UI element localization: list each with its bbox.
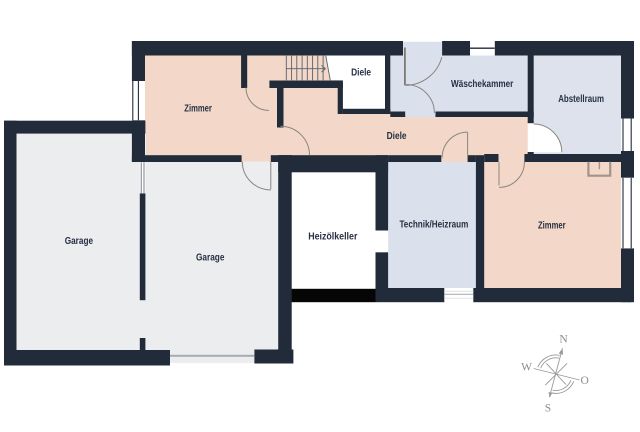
- svg-text:S: S: [545, 402, 551, 414]
- svg-text:Zimmer: Zimmer: [184, 103, 212, 114]
- svg-text:Diele: Diele: [351, 67, 371, 78]
- svg-text:Diele: Diele: [387, 131, 407, 142]
- svg-text:Zimmer: Zimmer: [538, 220, 566, 231]
- svg-text:Garage: Garage: [65, 236, 94, 247]
- svg-text:W: W: [521, 362, 532, 374]
- svg-text:O: O: [580, 375, 588, 387]
- svg-text:N: N: [559, 334, 568, 346]
- svg-text:Technik/Heizraum: Technik/Heizraum: [399, 219, 468, 230]
- svg-text:Heizölkeller: Heizölkeller: [308, 232, 357, 243]
- svg-text:Wäschekammer: Wäschekammer: [451, 79, 513, 90]
- svg-text:Abstellraum: Abstellraum: [558, 94, 604, 105]
- svg-text:Garage: Garage: [196, 253, 225, 264]
